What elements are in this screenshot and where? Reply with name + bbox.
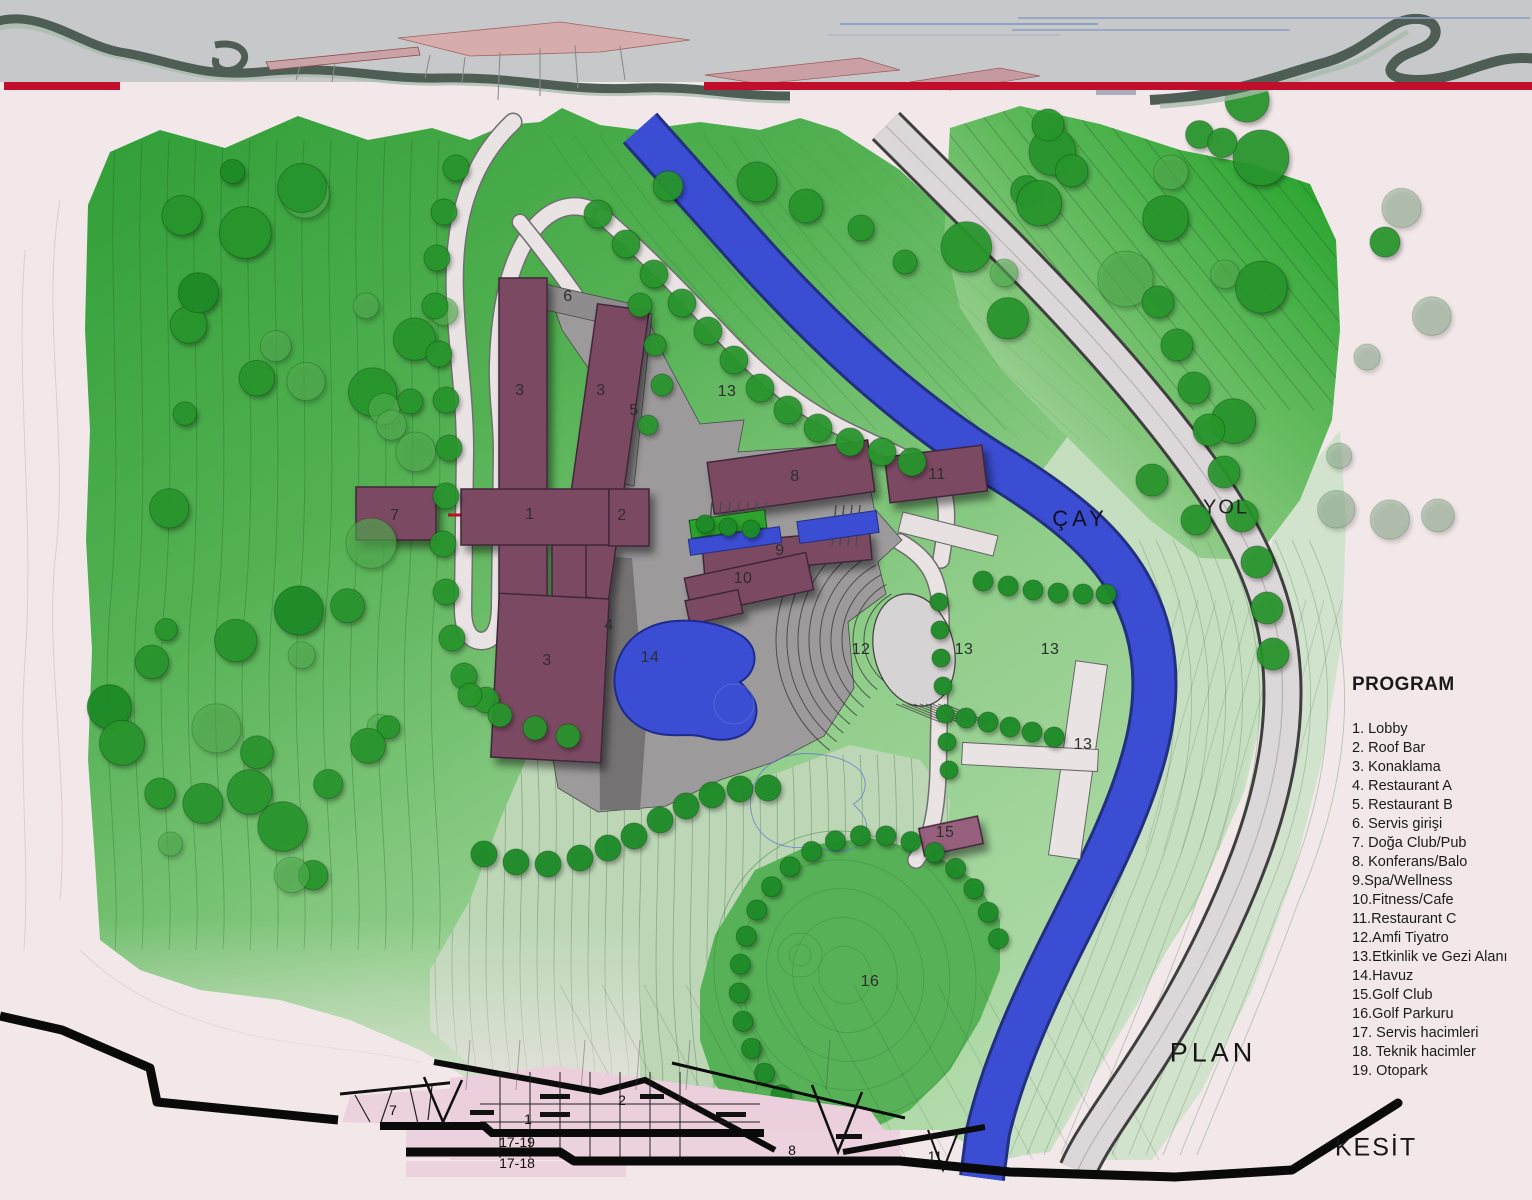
tree-icon (733, 1011, 753, 1031)
tree-icon (155, 619, 177, 641)
tree-icon (780, 857, 800, 877)
tree-icon (638, 415, 658, 435)
tree-icon (621, 823, 647, 849)
tree-icon (1193, 414, 1225, 446)
program-legend: PROGRAM 1. Lobby 2. Roof Bar 3. Konaklam… (1352, 674, 1528, 1081)
tree-icon (673, 793, 699, 819)
tree-icon (1241, 546, 1273, 578)
tree-icon (398, 389, 423, 414)
tree-icon (150, 489, 189, 528)
banner-red-bar-left (4, 82, 120, 90)
legend-item: 15.Golf Club (1352, 986, 1528, 1005)
tree-icon (436, 435, 462, 461)
tree-icon (1096, 584, 1116, 604)
tree-icon (1161, 329, 1193, 361)
tree-icon (1073, 584, 1093, 604)
tree-icon (1181, 505, 1211, 535)
tree-icon (653, 171, 683, 201)
tree-icon (762, 877, 782, 897)
tree-icon (848, 215, 874, 241)
tree-icon (458, 683, 482, 707)
building-3-block (491, 593, 609, 763)
tree-icon (439, 625, 465, 651)
tree-icon (1421, 499, 1454, 532)
tree-icon (1318, 491, 1355, 528)
tree-icon (998, 576, 1018, 596)
tree-icon (736, 926, 756, 946)
tree-icon (331, 589, 365, 623)
tree-icon (433, 579, 459, 605)
tree-icon (220, 160, 244, 184)
tree-icon (1233, 130, 1289, 186)
tree-icon (640, 260, 668, 288)
tree-icon (278, 164, 327, 213)
tree-icon (755, 775, 781, 801)
tree-icon (836, 428, 864, 456)
tree-icon (651, 374, 673, 396)
legend-item: 10.Fitness/Cafe (1352, 891, 1528, 910)
tree-icon (258, 802, 307, 851)
tree-icon (924, 843, 944, 863)
legend-item: 4. Restaurant A (1352, 777, 1528, 796)
tree-icon (535, 851, 561, 877)
tree-icon (1017, 181, 1062, 226)
tree-icon (694, 317, 722, 345)
tree-icon (1154, 155, 1188, 189)
legend-item: 14.Havuz (1352, 967, 1528, 986)
tree-icon (1370, 500, 1409, 539)
tree-icon (737, 162, 777, 202)
tree-icon (1208, 456, 1240, 488)
tree-icon (668, 289, 696, 317)
tree-icon (287, 362, 325, 400)
tree-icon (274, 586, 323, 635)
tree-icon (556, 724, 580, 748)
tree-icon (1354, 344, 1380, 370)
tree-icon (978, 712, 998, 732)
tree-icon (433, 387, 459, 413)
tree-icon (774, 396, 802, 424)
tree-icon (720, 346, 748, 374)
tree-icon (789, 189, 823, 223)
tree-icon (215, 619, 257, 661)
tree-icon (1211, 260, 1240, 289)
banner-red-bar-right (704, 82, 1532, 90)
tree-icon (644, 334, 666, 356)
legend-item: 12.Amfi Tiyatro (1352, 929, 1528, 948)
tree-icon (1000, 717, 1020, 737)
tree-icon (941, 222, 991, 272)
tree-icon (433, 483, 459, 509)
legend-title: PROGRAM (1352, 674, 1528, 696)
tree-icon (471, 841, 497, 867)
tree-icon (288, 642, 315, 669)
tree-icon (353, 293, 379, 319)
tree-icon (742, 520, 760, 538)
tree-icon (898, 448, 926, 476)
tree-icon (938, 733, 956, 751)
tree-icon (730, 954, 750, 974)
tree-icon (595, 835, 621, 861)
tree-icon (422, 293, 448, 319)
tree-icon (503, 849, 529, 875)
tree-icon (241, 736, 274, 769)
tree-icon (1048, 583, 1068, 603)
tree-icon (1370, 227, 1400, 257)
site-plan-canvas (0, 0, 1532, 1200)
tree-icon (988, 929, 1008, 949)
tree-icon (488, 703, 512, 727)
tree-icon (699, 782, 725, 808)
tree-icon (727, 776, 753, 802)
tree-icon (825, 831, 845, 851)
tree-icon (930, 593, 948, 611)
tree-icon (1055, 155, 1087, 187)
tree-icon (158, 832, 182, 856)
tree-icon (729, 983, 749, 1003)
tree-icon (747, 900, 767, 920)
tree-icon (987, 298, 1028, 339)
tree-icon (173, 402, 196, 425)
tree-icon (901, 832, 921, 852)
tree-icon (804, 414, 832, 442)
tree-icon (746, 374, 774, 402)
tree-icon (430, 531, 456, 557)
tree-icon (567, 845, 593, 871)
legend-item: 13.Etkinlik ve Gezi Alanı (1352, 948, 1528, 967)
legend-item: 1. Lobby (1352, 720, 1528, 739)
tree-icon (990, 259, 1018, 287)
tree-icon (1382, 188, 1421, 227)
building-2-roofbar (609, 489, 649, 546)
site-plan-page: ÇAY YOL PLAN KESİT 633513811712910431412… (0, 0, 1532, 1200)
tree-icon (192, 704, 241, 753)
tree-icon (802, 841, 822, 861)
tree-icon (612, 230, 640, 258)
tree-icon (696, 515, 714, 533)
tree-icon (178, 273, 218, 313)
legend-item: 3. Konaklama (1352, 758, 1528, 777)
tree-icon (346, 518, 396, 568)
legend-item: 19. Otopark (1352, 1062, 1528, 1081)
tree-icon (443, 155, 469, 181)
tree-icon (876, 826, 896, 846)
tree-icon (647, 807, 673, 833)
tree-icon (978, 902, 998, 922)
building-1-lobby (461, 489, 609, 545)
tree-icon (1143, 196, 1189, 242)
tree-icon (1022, 722, 1042, 742)
tree-icon (376, 410, 406, 440)
tree-icon (946, 858, 966, 878)
tree-icon (1208, 128, 1237, 157)
tree-icon (1235, 261, 1287, 313)
tree-icon (314, 770, 343, 799)
tree-icon (431, 199, 457, 225)
tree-icon (183, 783, 223, 823)
tree-icon (135, 645, 168, 678)
tree-icon (145, 778, 176, 809)
tree-icon (396, 432, 436, 472)
tree-icon (426, 341, 452, 367)
tree-icon (227, 770, 272, 815)
legend-item: 7. Doğa Club/Pub (1352, 834, 1528, 853)
tree-icon (351, 728, 386, 763)
tree-icon (719, 518, 737, 536)
tree-icon (523, 716, 547, 740)
legend-item: 9.Spa/Wellness (1352, 872, 1528, 891)
tree-icon (584, 200, 612, 228)
legend-item: 8. Konferans/Balo (1352, 853, 1528, 872)
tree-icon (931, 621, 949, 639)
legend-item: 16.Golf Parkuru (1352, 1005, 1528, 1024)
tree-icon (239, 360, 275, 396)
tree-icon (100, 720, 145, 765)
tree-icon (424, 245, 450, 271)
legend-item: 2. Roof Bar (1352, 739, 1528, 758)
tree-icon (850, 826, 870, 846)
tree-icon (936, 705, 954, 723)
tree-icon (260, 331, 291, 362)
tree-icon (1178, 372, 1210, 404)
tree-icon (1257, 638, 1289, 670)
tree-icon (964, 879, 984, 899)
tree-icon (162, 195, 202, 235)
legend-item: 11.Restaurant C (1352, 910, 1528, 929)
tree-icon (219, 207, 271, 259)
tree-icon (868, 438, 896, 466)
tree-icon (1142, 286, 1174, 318)
legend-item: 6. Servis girişi (1352, 815, 1528, 834)
tree-icon (1226, 500, 1258, 532)
tree-icon (934, 677, 952, 695)
legend-item: 5. Restaurant B (1352, 796, 1528, 815)
tree-icon (973, 571, 993, 591)
tree-icon (956, 708, 976, 728)
tree-icon (1044, 727, 1064, 747)
tree-icon (1136, 464, 1168, 496)
tree-icon (628, 293, 652, 317)
tree-icon (940, 761, 958, 779)
legend-item: 17. Servis hacimleri (1352, 1024, 1528, 1043)
tree-icon (932, 649, 950, 667)
legend-item: 18. Teknik hacimler (1352, 1043, 1528, 1062)
tree-icon (893, 250, 917, 274)
tree-icon (1412, 297, 1451, 336)
tree-icon (1032, 109, 1064, 141)
tree-icon (1023, 580, 1043, 600)
tree-icon (1251, 592, 1283, 624)
tree-icon (274, 857, 309, 892)
pool (614, 621, 756, 740)
tree-icon (1326, 443, 1351, 468)
